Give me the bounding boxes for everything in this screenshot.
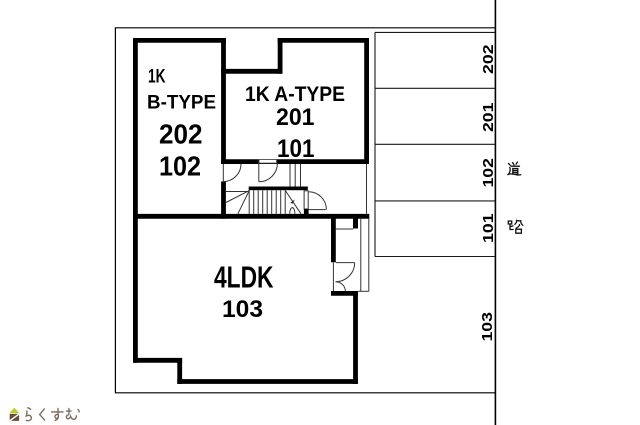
svg-text:101: 101 (480, 213, 497, 243)
svg-text:201: 201 (480, 103, 497, 133)
svg-text:103: 103 (479, 312, 496, 342)
svg-text:201: 201 (276, 104, 315, 131)
svg-text:1K A-TYPE: 1K A-TYPE (245, 83, 345, 106)
svg-text:102: 102 (159, 151, 201, 182)
svg-text:1K: 1K (148, 67, 166, 88)
svg-text:202: 202 (159, 119, 203, 150)
svg-text:B-TYPE: B-TYPE (147, 93, 216, 114)
svg-text:101: 101 (277, 135, 315, 163)
svg-text:202: 202 (480, 44, 497, 73)
svg-text:102: 102 (480, 158, 497, 188)
svg-text:4LDK: 4LDK (214, 260, 274, 295)
svg-text:103: 103 (222, 296, 263, 323)
